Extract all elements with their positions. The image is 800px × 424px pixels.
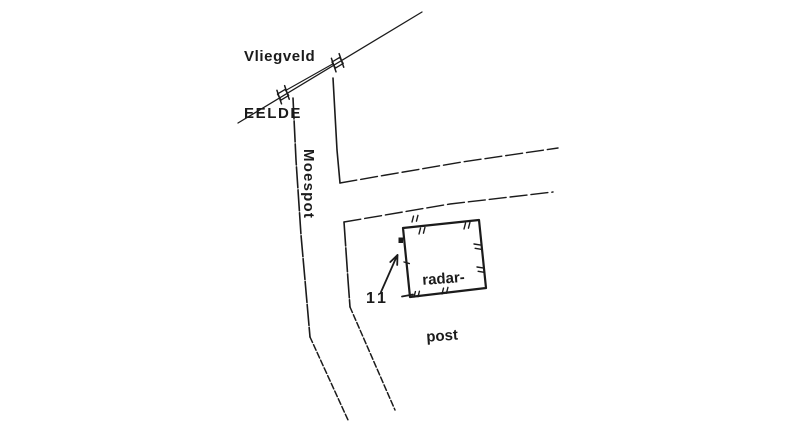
moespot-right-edge-upper: [333, 78, 340, 183]
airfield-label-line1: Vliegveld: [244, 47, 315, 66]
moespot-right-edge-mid: [344, 222, 350, 307]
moespot-left-edge-lower: [310, 337, 348, 420]
pointer-arrow-icon: [381, 255, 398, 292]
airfield-label: Vliegveld EELDE: [244, 9, 315, 161]
radar-post-label-line1: radar-: [422, 268, 466, 290]
map-canvas: Vliegveld EELDE Moespot radar- post 11: [0, 0, 800, 424]
radar-post-label-line2: post: [426, 325, 470, 347]
radar-position-dot-icon: [399, 238, 404, 244]
marker-11-label: 11: [366, 290, 389, 308]
moespot-right-edge-lower: [350, 307, 395, 410]
map-drawing: [0, 0, 800, 424]
airfield-label-line2: EELDE: [244, 104, 315, 123]
road-label-moespot: Moespot: [300, 149, 317, 219]
hatch-mark-icon: [474, 243, 481, 251]
hatch-mark-icon: [463, 222, 471, 229]
side-road-top-edge: [340, 148, 558, 183]
side-road-bottom-edge: [344, 192, 553, 222]
hatch-mark-icon: [411, 215, 419, 222]
